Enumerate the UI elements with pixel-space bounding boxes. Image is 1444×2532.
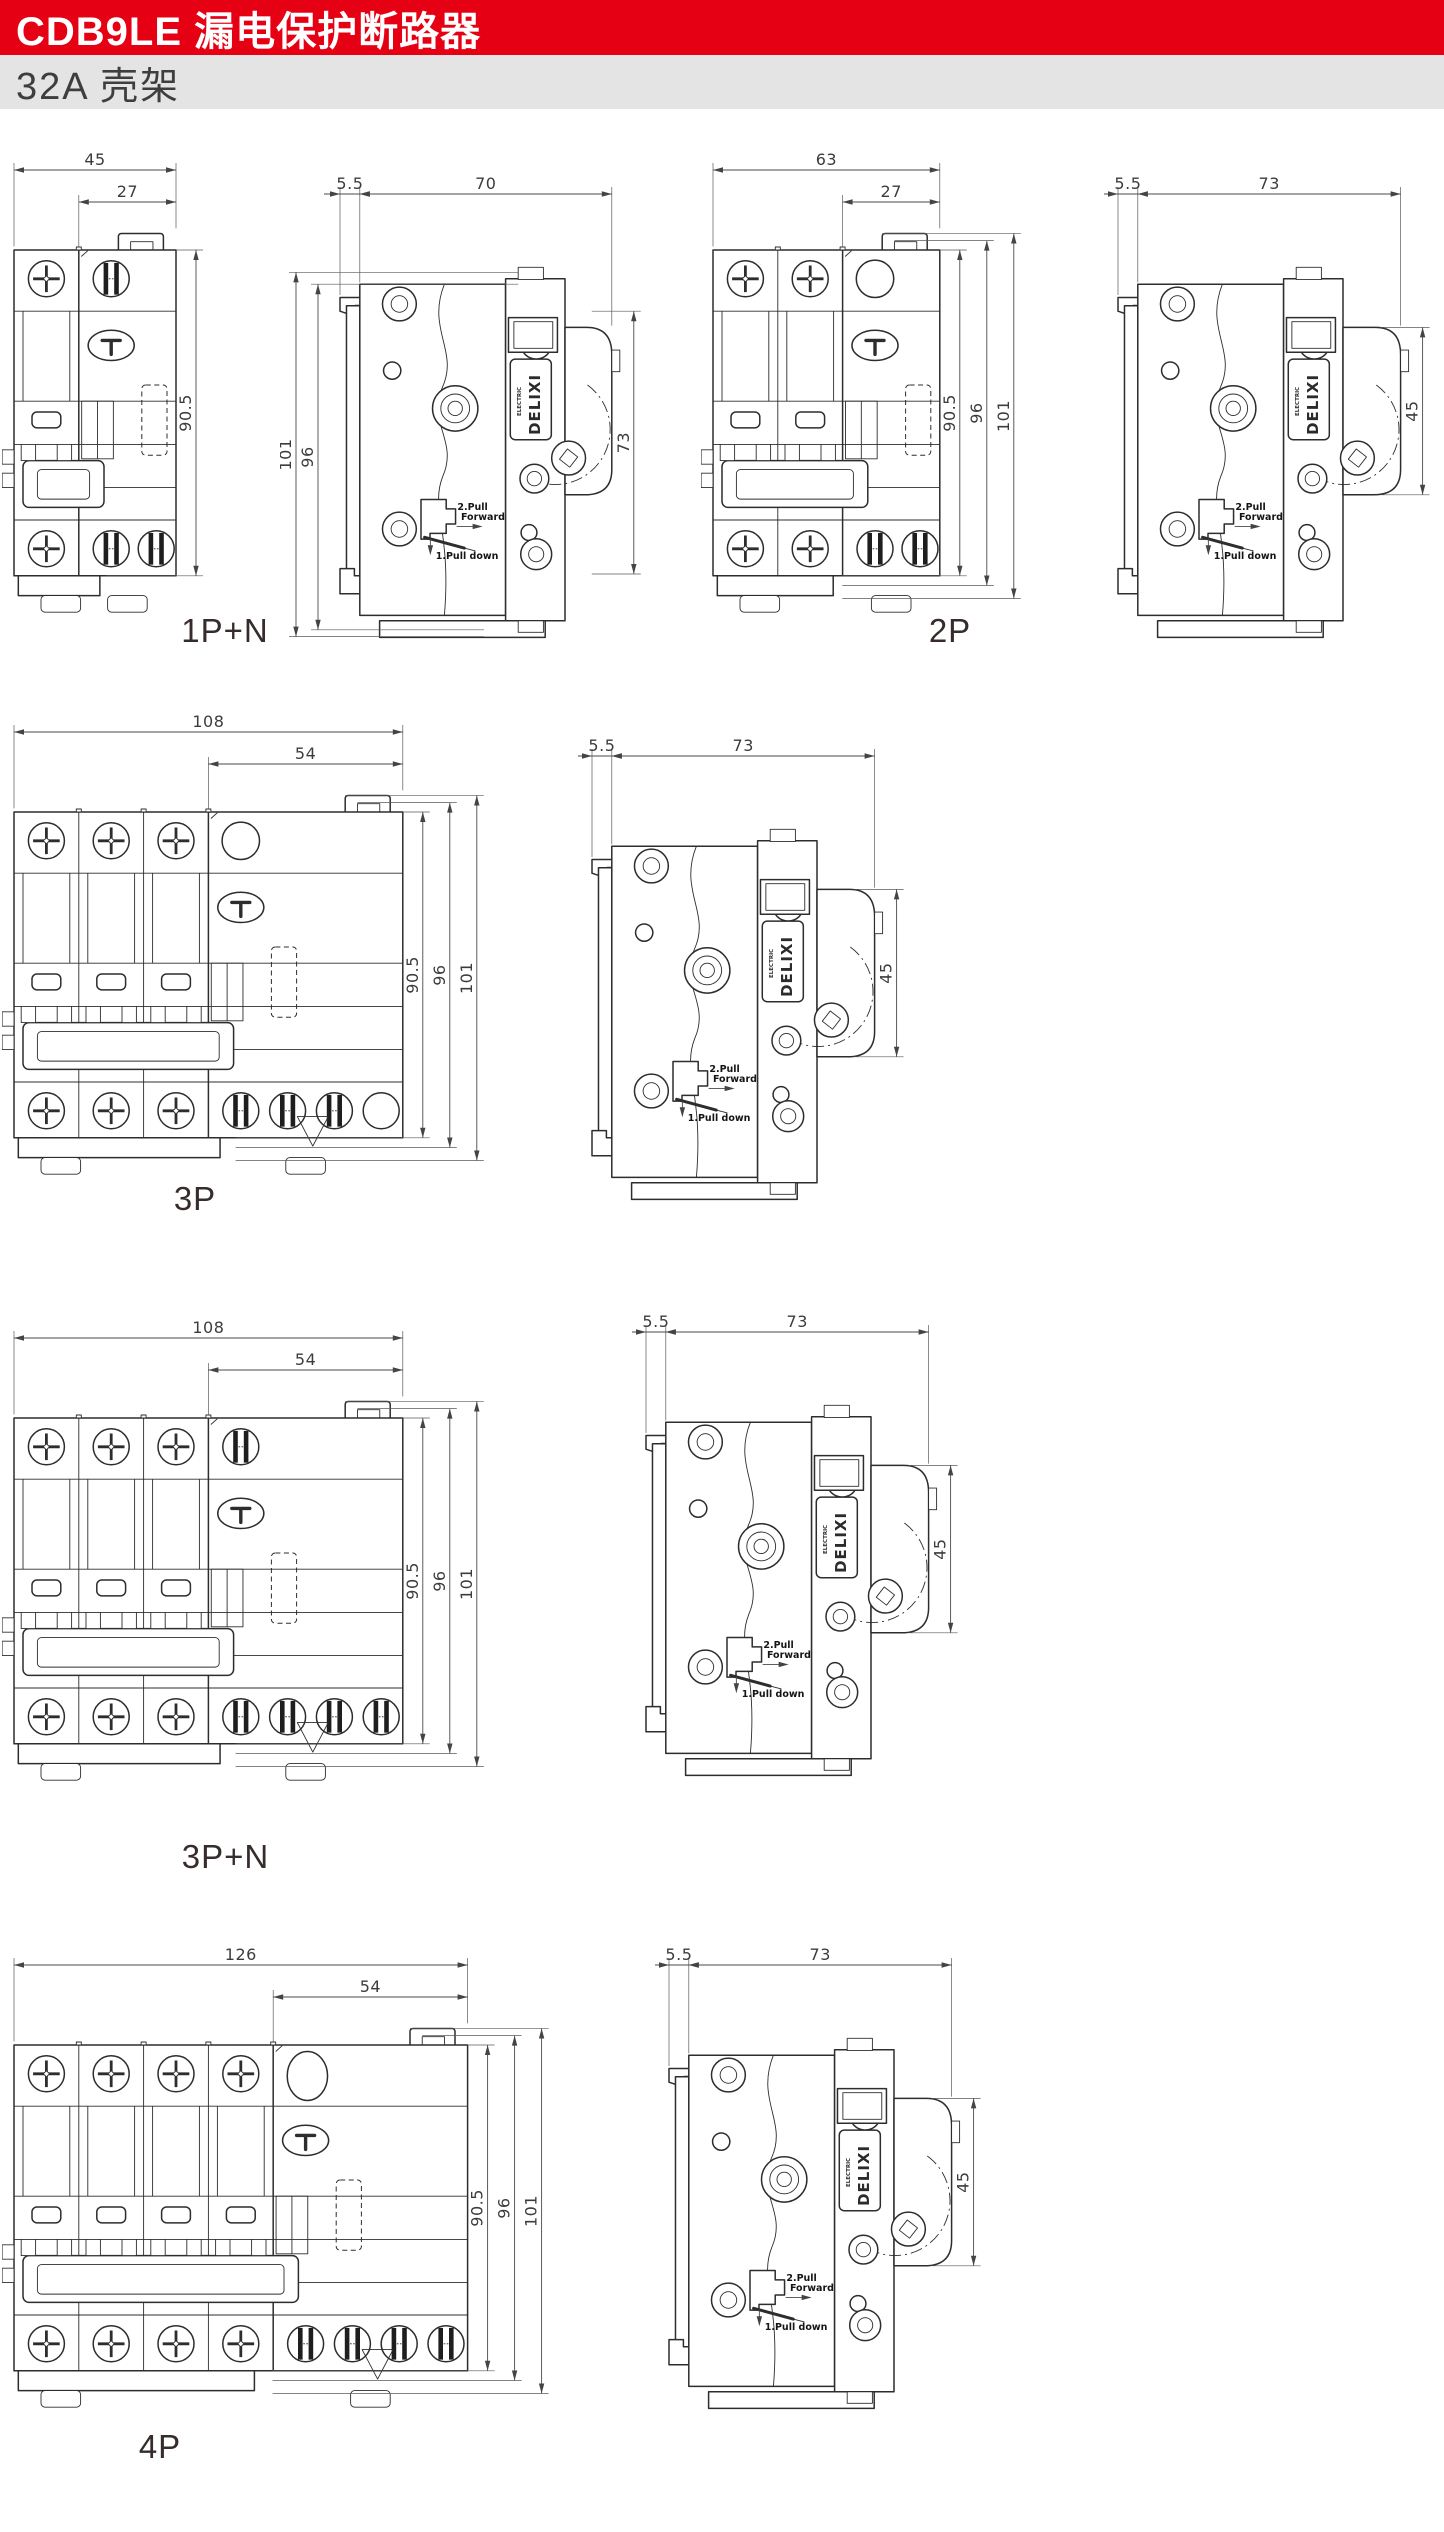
toggle-icon bbox=[226, 2207, 255, 2223]
dim-label: 101 bbox=[280, 438, 295, 470]
dim-label: 126 bbox=[225, 1945, 257, 1964]
brand-sub-text: ELECTRIC bbox=[823, 1525, 829, 1554]
dim-label: 45 bbox=[84, 150, 105, 169]
dim-label: 73 bbox=[787, 1312, 808, 1331]
pull-down-label: 1.Pull down bbox=[1214, 551, 1277, 562]
dim-label: 101 bbox=[457, 962, 476, 994]
dim-label: 96 bbox=[430, 1570, 449, 1591]
dim-label: 73 bbox=[810, 1945, 831, 1964]
dim-label: 27 bbox=[881, 182, 902, 201]
breaker-front-drawing: 632790.596101 bbox=[701, 150, 1040, 670]
dim-label: 5.5 bbox=[336, 174, 363, 193]
dim-label: Forward bbox=[1239, 512, 1283, 523]
dim-label: 90.5 bbox=[940, 394, 959, 432]
dim-label: 108 bbox=[192, 1318, 224, 1337]
toggle-icon bbox=[32, 2207, 61, 2223]
brand-sticker: DELIXIELECTRIC bbox=[762, 921, 803, 1002]
brand-sub-text: ELECTRIC bbox=[769, 949, 775, 978]
section-label-3p: 3P bbox=[130, 1180, 260, 1218]
front-view-2p: 632790.596101 bbox=[701, 150, 1040, 670]
page-subtitle: 32A 壳架 bbox=[16, 55, 180, 110]
breaker-side-outline bbox=[669, 2038, 960, 2408]
brand-sub-text: ELECTRIC bbox=[1295, 387, 1301, 416]
dim-label: 54 bbox=[360, 1977, 381, 1996]
dim-label: 96 bbox=[495, 2197, 514, 2218]
dim-label: 96 bbox=[967, 402, 986, 423]
front-view-4p: 1265490.596101 bbox=[2, 1933, 568, 2453]
brand-text: DELIXI bbox=[778, 936, 796, 997]
toggle-icon bbox=[97, 2207, 126, 2223]
toggle-icon bbox=[162, 974, 191, 990]
breaker-side-drawing: DELIXIELECTRIC2.PullForward1.Pull down5.… bbox=[632, 1288, 987, 1808]
dim-label: 54 bbox=[295, 1350, 316, 1369]
toggle-icon bbox=[97, 1580, 126, 1596]
dim-label: 63 bbox=[816, 150, 837, 169]
dim-label: Forward bbox=[461, 512, 505, 523]
breaker-front-drawing: 1085490.596101 bbox=[2, 712, 503, 1232]
dim-label: 101 bbox=[994, 400, 1013, 432]
dim-label: 73 bbox=[733, 736, 754, 755]
breaker-side-outline bbox=[340, 267, 620, 637]
section-label-1p-n: 1P+N bbox=[150, 612, 300, 650]
dim-label: 90.5 bbox=[403, 1562, 422, 1600]
brand-sub-text: ELECTRIC bbox=[517, 387, 523, 416]
side-view-3p: DELIXIELECTRIC2.PullForward1.Pull down5.… bbox=[578, 712, 933, 1232]
dim-label: Forward bbox=[790, 2283, 834, 2294]
dim-label: 5.5 bbox=[588, 736, 615, 755]
dim-label: 45 bbox=[931, 1538, 950, 1559]
breaker-side-outline bbox=[646, 1405, 937, 1775]
dim-label: 96 bbox=[298, 446, 317, 467]
dim-label: 5.5 bbox=[642, 1312, 669, 1331]
dim-label: 108 bbox=[192, 712, 224, 731]
dim-label: 45 bbox=[877, 962, 896, 983]
brand-sub-text: ELECTRIC bbox=[846, 2158, 852, 2187]
toggle-icon bbox=[162, 1580, 191, 1596]
brand-sticker: DELIXIELECTRIC bbox=[839, 2130, 880, 2211]
brand-text: DELIXI bbox=[855, 2145, 873, 2206]
dim-label: 90.5 bbox=[176, 394, 195, 432]
brand-sticker: DELIXIELECTRIC bbox=[510, 359, 551, 440]
side-view-4p: DELIXIELECTRIC2.PullForward1.Pull down5.… bbox=[655, 1933, 1010, 2453]
brand-text: DELIXI bbox=[1304, 374, 1322, 435]
toggle-icon bbox=[32, 974, 61, 990]
toggle-icon bbox=[162, 2207, 191, 2223]
pull-down-label: 1.Pull down bbox=[436, 551, 499, 562]
section-label-4p: 4P bbox=[95, 2428, 225, 2466]
front-view-1p-n: 452790.5 bbox=[2, 150, 276, 670]
side-view-3p-n: DELIXIELECTRIC2.PullForward1.Pull down5.… bbox=[632, 1288, 987, 1808]
toggle-icon bbox=[731, 412, 760, 428]
dim-label: 73 bbox=[614, 432, 633, 453]
pull-down-label: 1.Pull down bbox=[765, 2322, 828, 2333]
pull-down-label: 1.Pull down bbox=[742, 1689, 805, 1700]
side-view-1p-n: DELIXIELECTRIC2.PullForward1.Pull down5.… bbox=[280, 150, 670, 670]
dim-label: 101 bbox=[457, 1568, 476, 1600]
brand-sticker: DELIXIELECTRIC bbox=[816, 1497, 857, 1578]
dim-label: 54 bbox=[295, 744, 316, 763]
dim-label: 73 bbox=[1259, 174, 1280, 193]
toggle-icon bbox=[32, 412, 61, 428]
brand-sticker: DELIXIELECTRIC bbox=[1288, 359, 1329, 440]
brand-text: DELIXI bbox=[526, 374, 544, 435]
toggle-icon bbox=[796, 412, 825, 428]
toggle-icon bbox=[32, 1580, 61, 1596]
dim-label: 96 bbox=[430, 964, 449, 985]
breaker-front-drawing: 452790.5 bbox=[2, 150, 276, 670]
breaker-side-drawing: DELIXIELECTRIC2.PullForward1.Pull down5.… bbox=[578, 712, 933, 1232]
dim-label: 90.5 bbox=[468, 2189, 487, 2227]
pull-down-label: 1.Pull down bbox=[688, 1113, 751, 1124]
dim-label: 5.5 bbox=[1114, 174, 1141, 193]
side-view-2p: DELIXIELECTRIC2.PullForward1.Pull down5.… bbox=[1104, 150, 1444, 670]
dim-label: Forward bbox=[713, 1074, 757, 1085]
subheader-bar: 32A 壳架 bbox=[0, 55, 1444, 109]
breaker-side-outline bbox=[592, 829, 883, 1199]
breaker-front-drawing: 1085490.596101 bbox=[2, 1288, 503, 1808]
breaker-side-outline bbox=[1118, 267, 1409, 637]
section-label-2p: 2P bbox=[880, 612, 1020, 650]
dim-label: 45 bbox=[1403, 400, 1422, 421]
dim-label: 5.5 bbox=[665, 1945, 692, 1964]
dim-label: 90.5 bbox=[403, 956, 422, 994]
page-title: CDB9LE 漏电保护断路器 bbox=[16, 0, 481, 57]
toggle-icon bbox=[97, 974, 126, 990]
header-bar: CDB9LE 漏电保护断路器 bbox=[0, 0, 1444, 55]
breaker-side-drawing: DELIXIELECTRIC2.PullForward1.Pull down5.… bbox=[655, 1933, 1010, 2453]
breaker-front-drawing: 1265490.596101 bbox=[2, 1933, 568, 2453]
section-label-3p-n: 3P+N bbox=[148, 1838, 303, 1876]
brand-text: DELIXI bbox=[832, 1512, 850, 1573]
dim-label: Forward bbox=[767, 1650, 811, 1661]
front-view-3p: 1085490.596101 bbox=[2, 712, 503, 1232]
dim-label: 27 bbox=[117, 182, 138, 201]
dim-label: 45 bbox=[954, 2171, 973, 2192]
dim-label: 101 bbox=[522, 2195, 541, 2227]
breaker-side-drawing: DELIXIELECTRIC2.PullForward1.Pull down5.… bbox=[1104, 150, 1444, 670]
breaker-side-drawing: DELIXIELECTRIC2.PullForward1.Pull down5.… bbox=[280, 150, 670, 670]
front-view-3p-n: 1085490.596101 bbox=[2, 1288, 503, 1808]
dim-label: 70 bbox=[475, 174, 496, 193]
